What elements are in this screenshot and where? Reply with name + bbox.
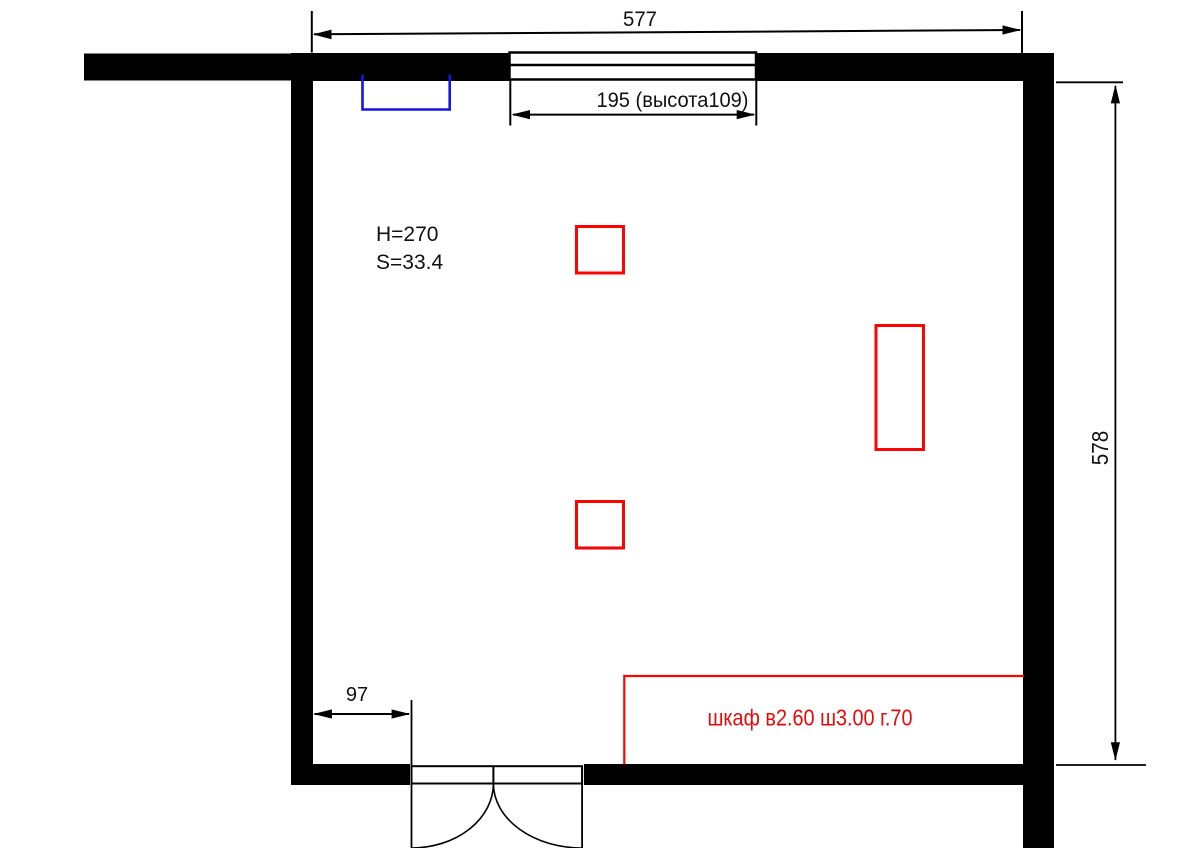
svg-text:97: 97 — [346, 684, 368, 706]
svg-text:шкаф в2.60 ш3.00 г.70: шкаф в2.60 ш3.00 г.70 — [708, 705, 913, 731]
svg-text:H=270: H=270 — [376, 223, 438, 246]
svg-text:578: 578 — [1087, 431, 1113, 466]
svg-text:195 (высота109): 195 (высота109) — [597, 89, 749, 112]
svg-text:577: 577 — [623, 7, 657, 31]
svg-text:S=33.4: S=33.4 — [376, 251, 443, 274]
